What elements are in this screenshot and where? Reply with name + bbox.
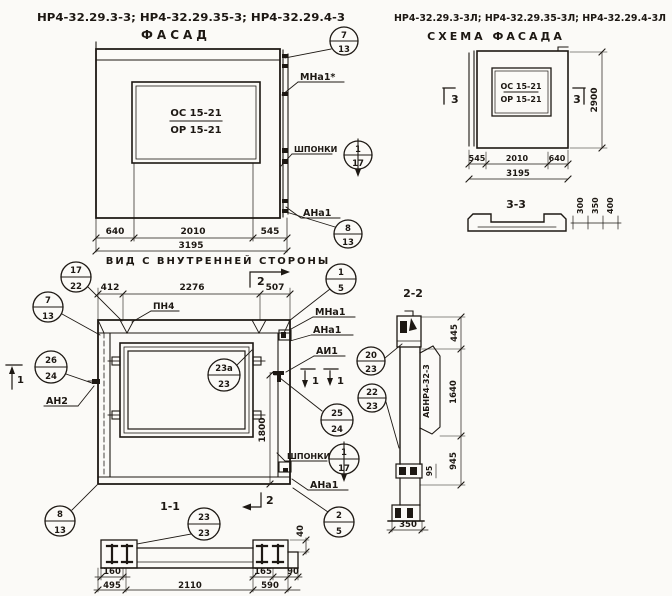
svg-text:1: 1 (337, 376, 344, 387)
section-2-mark-bottom: 2 (242, 493, 274, 511)
detail-ref-keys: 1 17 (344, 139, 372, 177)
label-ana1-top: АНа1 (290, 325, 353, 341)
svg-text:АИ1: АИ1 (316, 346, 338, 357)
section-3-3-title: 3-3 (506, 198, 526, 211)
svg-text:1: 1 (312, 376, 319, 387)
detail-ref-22-23: 22 23 (358, 384, 399, 448)
facade-caption: ВИД С ВНУТРЕННЕЙ СТОРОНЫ (106, 254, 331, 267)
svg-text:АН2: АН2 (46, 396, 68, 407)
detail-ref-26-24: 26 24 (35, 351, 92, 383)
dim-495: 495 (103, 581, 121, 591)
svg-text:ШПОНКИ: ШПОНКИ (294, 145, 337, 154)
svg-text:25: 25 (331, 409, 343, 419)
dim-445: 445 (450, 324, 460, 342)
svg-text:23: 23 (218, 380, 230, 390)
svg-text:13: 13 (342, 238, 354, 248)
drawing-canvas: НР4-32.29.3-3; НР4-32.29.35-3; НР4-32.29… (0, 0, 672, 596)
svg-text:3: 3 (573, 93, 581, 106)
svg-text:22: 22 (70, 282, 82, 292)
facade-edge-strip (283, 50, 288, 217)
scheme-dim-height: 2900 (590, 87, 600, 112)
svg-text:23: 23 (366, 402, 378, 412)
facade-label-ana1: АНа1 (286, 207, 340, 219)
chamfer-marks (98, 320, 290, 333)
svg-text:26: 26 (45, 356, 57, 366)
facade-label-mna1: МНа1* (282, 72, 344, 95)
title-left-name: ФАСАД (141, 28, 211, 42)
dim-2110: 2110 (178, 581, 202, 591)
svg-text:13: 13 (42, 312, 54, 322)
view-1-1-title: 1-1 (160, 500, 180, 513)
svg-text:24: 24 (331, 425, 343, 435)
view-1-1: 17 22 7 13 412 2276 507 2 1 5 ПН (6, 262, 359, 593)
section-1-mark-right: 1 1 (301, 369, 344, 388)
section-3-3-dim-b: 350 (591, 197, 600, 214)
label-pn4: ПН4 (132, 302, 179, 322)
dim-95: 95 (425, 466, 434, 476)
section-1-mark-left: 1 (6, 365, 24, 389)
dim-160: 160 (103, 567, 121, 577)
facade-dim-total: 3195 (178, 241, 203, 251)
svg-text:АНа1: АНа1 (310, 480, 338, 491)
section-2-2: 2-2 20 23 22 23 АБНР4-32-3 (357, 287, 465, 533)
title-left-codes: НР4-32.29.3-3; НР4-32.29.35-3; НР4-32.29… (37, 11, 345, 24)
svg-text:АНа1: АНа1 (303, 208, 331, 219)
detail-ref-23-23: 23 23 (137, 508, 220, 544)
detail-ref-20-23: 20 23 (357, 344, 402, 375)
svg-text:7: 7 (45, 296, 51, 306)
section-3-3-dim-a: 300 (576, 197, 585, 214)
facade-window-frame (132, 82, 260, 163)
svg-text:ШПОНКИ: ШПОНКИ (287, 452, 330, 461)
svg-text:23: 23 (198, 513, 210, 523)
section-3-3-profile (468, 214, 566, 231)
dim-1800: 1800 (258, 417, 268, 442)
svg-text:1: 1 (338, 268, 344, 278)
svg-text:17: 17 (338, 464, 350, 474)
bottom-section-profile (101, 540, 298, 568)
section-3-mark-left: 3 (443, 88, 459, 106)
window-hinges (108, 357, 265, 419)
dim-412: 412 (101, 283, 120, 293)
facade-view: ОС 15-21 ОР 15-21 640 2010 545 3195 ВИД … (93, 27, 372, 267)
section-3-3-dim-lines (571, 216, 621, 229)
svg-text:5: 5 (336, 527, 342, 537)
svg-text:13: 13 (54, 526, 66, 536)
section-2-2-title: 2-2 (403, 287, 423, 300)
scheme-edge-strip (469, 51, 474, 146)
section-3-mark-right: 3 (573, 88, 585, 106)
scheme-dim-right: 640 (549, 154, 566, 163)
anchor-glyphs-right (257, 545, 283, 563)
svg-text:МНа1*: МНа1* (300, 72, 335, 83)
svg-text:ПН4: ПН4 (153, 302, 174, 312)
window-frame-outer (120, 343, 253, 437)
anchor-glyphs-left (107, 545, 132, 563)
svg-text:АНа1: АНа1 (313, 325, 341, 336)
title-right-name: СХЕМА ФАСАДА (427, 30, 565, 43)
svg-text:24: 24 (45, 372, 57, 382)
label-an2: АН2 (44, 386, 94, 407)
dim-350: 350 (399, 520, 417, 530)
detail-ref-7-13b: 7 13 (33, 292, 100, 335)
svg-text:20: 20 (365, 351, 377, 361)
facade-window-mark-top: ОС 15-21 (170, 108, 221, 119)
scheme-view: ОС 15-21 ОР 15-21 3 3 2900 545 2010 640 … (443, 47, 607, 182)
title-right-codes: НР4-32.29.3-3Л; НР4-32.29.35-3Л; НР4-32.… (394, 13, 666, 24)
svg-text:23: 23 (198, 529, 210, 539)
svg-text:8: 8 (345, 224, 351, 234)
facade-dim-mid: 2010 (180, 227, 205, 237)
facade-dim-right: 545 (261, 227, 280, 237)
svg-text:МНа1: МНа1 (315, 307, 345, 318)
svg-text:22: 22 (366, 388, 378, 398)
facade-label-shponki: ШПОНКИ 1 17 (281, 139, 372, 177)
dim-1640: 1640 (449, 380, 459, 404)
dim-945: 945 (449, 452, 459, 470)
svg-text:1: 1 (17, 375, 24, 386)
label-ana1-bottom: АНа1 (292, 479, 348, 491)
dim-40: 40 (296, 525, 306, 537)
panel-body-outline (98, 320, 290, 484)
svg-text:2: 2 (336, 511, 342, 521)
svg-text:2: 2 (266, 494, 274, 507)
svg-text:17: 17 (70, 266, 82, 276)
svg-text:2: 2 (257, 275, 265, 288)
section-2-2-body (400, 347, 420, 464)
detail-ref-keys-2: 1 17 (329, 442, 359, 482)
dim-507: 507 (266, 283, 285, 293)
svg-text:1: 1 (355, 145, 361, 155)
facade-dim-lines (96, 163, 287, 252)
dim-2276: 2276 (179, 283, 204, 293)
label-ai1: АИ1 (286, 346, 345, 372)
svg-text:1: 1 (341, 448, 347, 458)
section-3-3-dim-c: 400 (606, 197, 615, 214)
svg-text:17: 17 (352, 159, 364, 169)
detail-ref-7-13: 7 13 (285, 27, 358, 58)
dim-590: 590 (261, 581, 279, 591)
titles: НР4-32.29.3-3; НР4-32.29.35-3; НР4-32.29… (37, 11, 666, 43)
svg-text:8: 8 (57, 510, 63, 520)
svg-text:23а: 23а (215, 364, 233, 374)
svg-text:23: 23 (365, 365, 377, 375)
facade-window-mark-bottom: ОР 15-21 (170, 125, 221, 136)
technical-drawing-sheet: НР4-32.29.3-3; НР4-32.29.35-3; НР4-32.29… (0, 0, 672, 596)
svg-text:7: 7 (341, 31, 347, 41)
scheme-window-mark-bottom: ОР 15-21 (500, 95, 541, 104)
dim-165: 165 (254, 567, 272, 577)
panel-mark-label: АБНР4-32-3 (422, 364, 431, 418)
svg-text:5: 5 (338, 284, 344, 294)
dim-90: 90 (287, 567, 299, 577)
svg-text:13: 13 (338, 45, 350, 55)
svg-text:3: 3 (451, 93, 459, 106)
scheme-dim-left: 545 (469, 154, 486, 163)
detail-ref-8-13b: 8 13 (45, 485, 97, 536)
scheme-dim-total: 3195 (506, 169, 530, 179)
anchor-an2-mark (88, 379, 100, 384)
facade-dim-left: 640 (106, 227, 125, 237)
scheme-window-mark-top: ОС 15-21 (500, 82, 541, 91)
scheme-dim-mid: 2010 (506, 154, 529, 163)
section-3-3: 3-3 300 350 400 (468, 197, 621, 231)
